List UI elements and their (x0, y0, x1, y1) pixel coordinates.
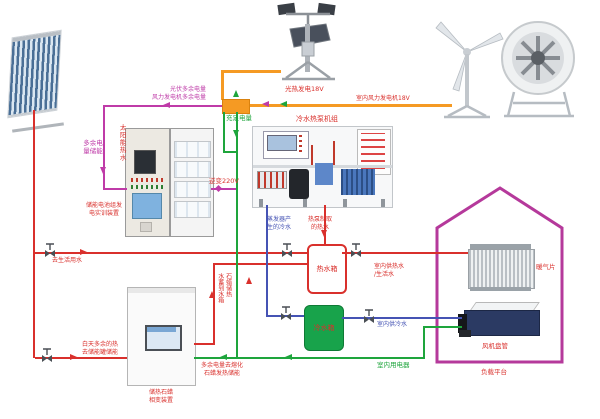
collector-stand (12, 122, 64, 132)
solar-collector-image (6, 26, 70, 114)
fan-coil-pipes (459, 330, 471, 337)
fan-coil-power-v (423, 327, 425, 359)
shelf-row (174, 201, 211, 218)
system-diagram: 热水箱 冷水箱 (0, 0, 600, 419)
cold-water-tank: 冷水箱 (304, 305, 344, 351)
shelf-row (174, 181, 211, 198)
orange-bus-magenta-arrow (262, 101, 269, 107)
pc-top-strip (128, 288, 195, 293)
indoor-power-label: 室内用电器 (377, 361, 410, 369)
paraffin-phase-change-cabinet-image (127, 287, 196, 386)
hp-screen (267, 135, 297, 151)
sufficient-power-label: 充足电量 (226, 114, 252, 122)
power-bus-stub-h (223, 151, 238, 153)
cabinet-blue-panel (132, 193, 162, 219)
pv-18v-wire-h (221, 70, 281, 73)
indoor-hot-label: 室内供热水 /生活水 (374, 263, 404, 278)
hp-compressor (289, 169, 309, 199)
battery-shelf-cabinet-image (170, 128, 214, 237)
hp-right-indicators (361, 133, 385, 169)
heat-pump-unit-image (252, 126, 393, 208)
valve-icon (280, 306, 292, 321)
hp-condenser (341, 169, 375, 195)
hp-red-striped-unit (257, 171, 287, 189)
fan-coil-image (458, 300, 540, 340)
power-bus-v (236, 112, 238, 358)
paraffin-to-tank-pipe-h (215, 263, 308, 265)
cold-water-tank-label: 冷水箱 (314, 323, 335, 333)
pv-output-label: 光热发电18V (285, 85, 324, 93)
melt-paraffin-label: 多余电量去熔化 石蜡发热储能 (198, 362, 246, 377)
heat-pump-label: 冷水热泵机组 (296, 115, 338, 124)
pv-tracker-image (272, 2, 344, 84)
indicator-row (131, 185, 163, 189)
valve-icon (350, 243, 362, 258)
inverter-label: 逆变220V (209, 177, 239, 185)
pv-18v-wire-v (221, 71, 224, 100)
power-bus-stub-v (223, 112, 225, 153)
solar-hot-water-label: 太阳能热水 (118, 124, 126, 176)
paraffin-outlet-pipe (194, 343, 215, 345)
power-bus-bottom-h (194, 357, 425, 359)
wind-output-label: 室内风力发电机18V (356, 95, 410, 103)
indicator-row (131, 178, 163, 182)
day-heat-label: 白天多余的热 去储能罐储能 (80, 341, 120, 356)
radiator-label: 暖气片 (536, 263, 556, 271)
solar-hot-water-pipe (33, 110, 35, 358)
hot-water-tank: 热水箱 (307, 244, 347, 294)
battery-cabinet-label: 储能电池组发 电实训装置 (84, 202, 124, 217)
battery-control-cabinet-image (125, 128, 170, 237)
surplus-flow-arrow (163, 102, 170, 108)
evap-cold-label: 蒸发器产 生的冷水 (264, 216, 294, 231)
power-bus-down-arrow (233, 130, 239, 137)
hp-pipe (333, 141, 335, 165)
hp-leg (343, 199, 347, 207)
surplus-store-label: 多余电 量储能 (82, 139, 104, 155)
surplus-wire-into-cabinet (103, 188, 127, 190)
heatpump-hot-down-arrow (321, 230, 327, 237)
inverter-flow-marker (215, 185, 222, 192)
hp-pipe (311, 145, 313, 165)
valve-icon (44, 243, 56, 258)
domestic-water-arrow (80, 249, 87, 255)
paraffin-heat-up-arrow (246, 277, 252, 284)
paraffin-cabinet-label: 储热石蜡 相变装置 (142, 389, 180, 404)
valve-icon (281, 243, 293, 258)
paraffin-loop-up-arrow (209, 291, 215, 298)
melt-power-arrow-1 (220, 354, 227, 360)
junction-up-arrow (233, 90, 239, 97)
storage-down-arrow (100, 167, 106, 174)
shelf-row (174, 161, 211, 178)
valve-icon (363, 309, 375, 324)
cabinet-vent (140, 222, 152, 232)
hp-hot-label: 热泵制取 的热水 (306, 216, 334, 231)
paraffin-to-tank-pipe-v (213, 263, 215, 345)
hp-evaporator (315, 163, 333, 185)
fan-coil-label: 风机盘管 (482, 342, 508, 350)
load-platform-label: 负载平台 (481, 368, 507, 376)
shelf-row (174, 141, 211, 158)
hp-leg (303, 199, 307, 207)
to-domestic-label: 去生活用水 (52, 257, 82, 265)
hot-water-tank-label: 热水箱 (317, 264, 338, 274)
coldtank-to-fancoil-pipe (342, 317, 462, 319)
hp-knobs (299, 135, 302, 153)
melt-power-arrow-2 (285, 354, 292, 360)
paraffin-to-tank-label: 石蜡储热 水蓄到水箱 (216, 273, 232, 317)
valve-icon (41, 348, 53, 363)
collector-panel (8, 31, 60, 117)
fan-coil-body (464, 310, 540, 336)
orange-bus-green-arrow (280, 101, 287, 107)
day-heat-arrow (70, 354, 77, 360)
indoor-cold-label: 室内供冷水 (377, 321, 407, 329)
radiator-image (468, 244, 533, 291)
radiator-bottom-rail (470, 287, 531, 291)
wind-18v-wire (247, 104, 452, 107)
pc-screen-header (147, 327, 176, 332)
radiator-fins (468, 249, 535, 289)
fan-coil-power-h (423, 326, 462, 328)
hp-leg (381, 199, 385, 207)
surplus-bus-label: 光伏多余电量 风力发电机多余电量 (132, 86, 206, 101)
hp-leg (259, 199, 263, 207)
cabinet-screen (134, 150, 156, 174)
